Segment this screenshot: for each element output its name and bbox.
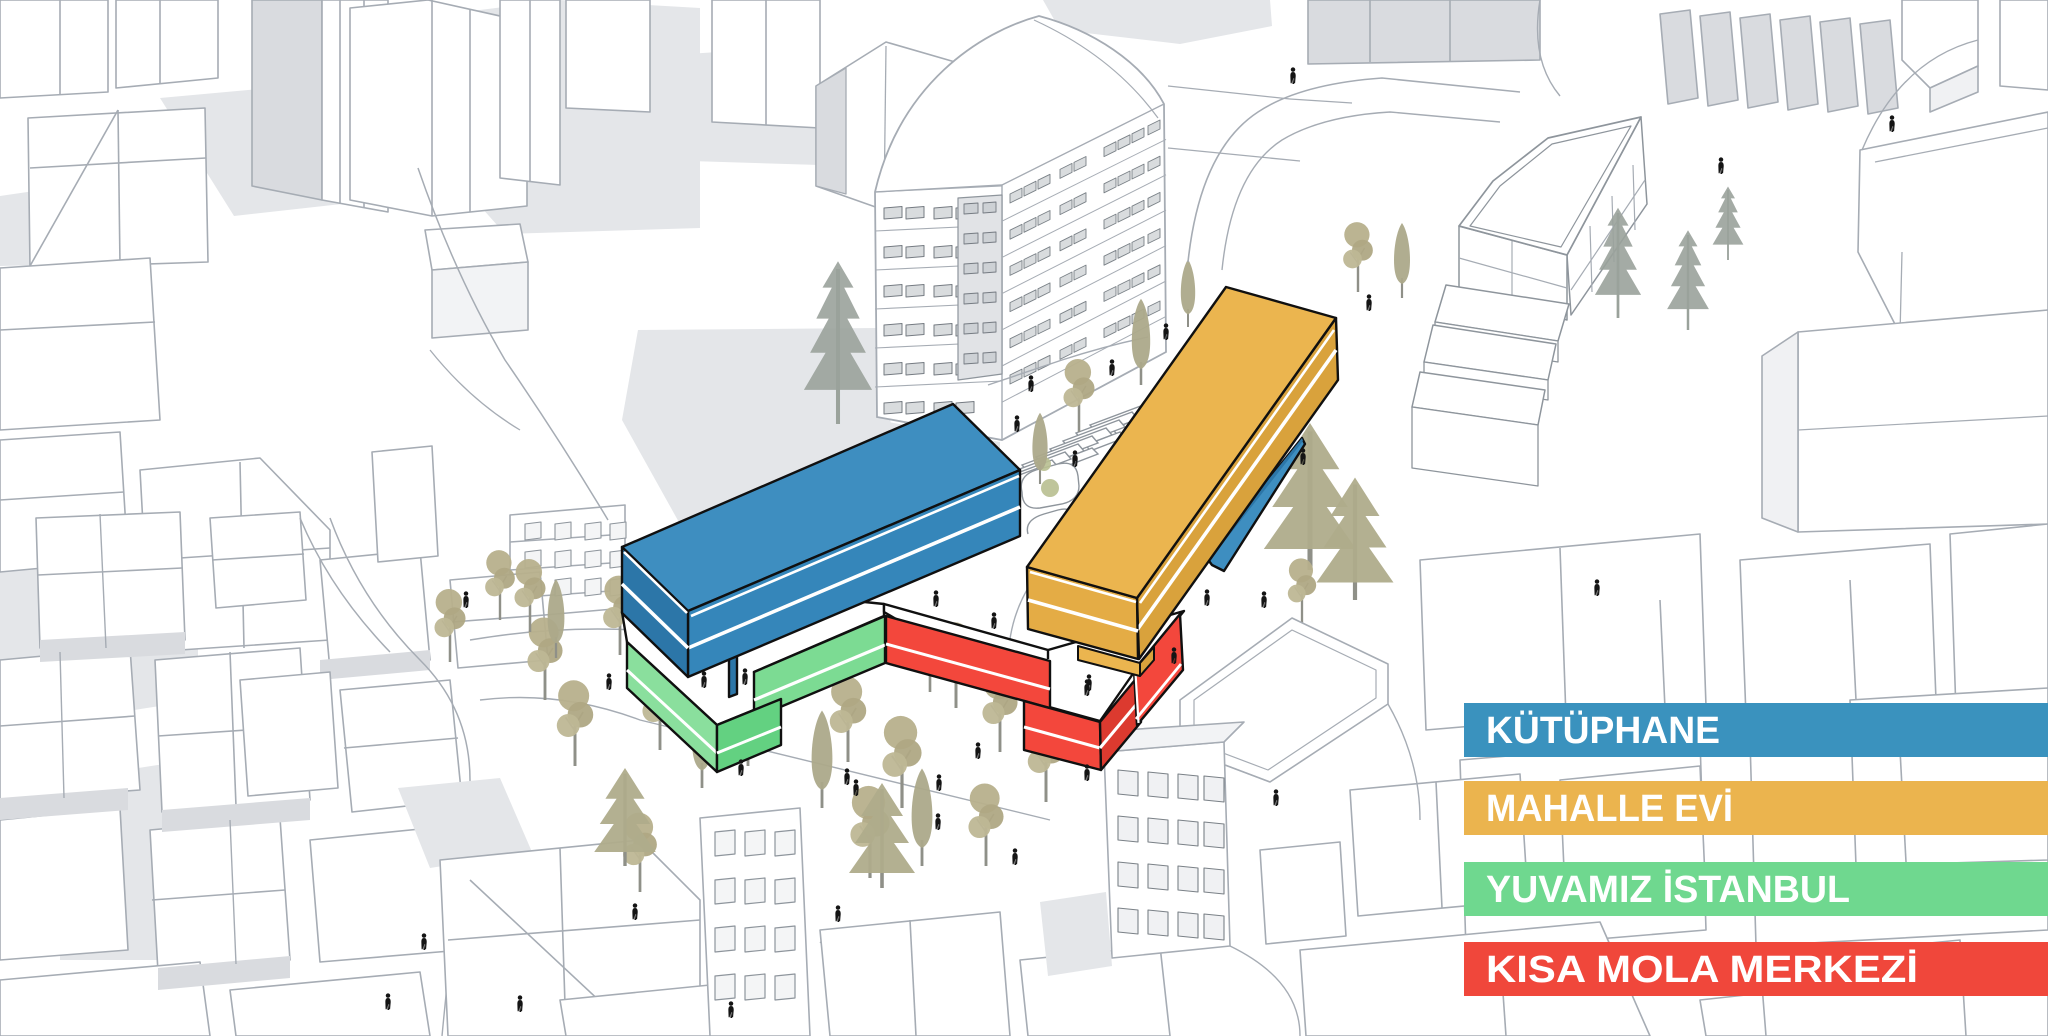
svg-text:YUVAMIZ İSTANBUL: YUVAMIZ İSTANBUL (1486, 869, 1850, 911)
svg-text:MAHALLE EVİ: MAHALLE EVİ (1486, 788, 1733, 830)
svg-text:KÜTÜPHANE: KÜTÜPHANE (1486, 709, 1720, 752)
svg-text:KISA MOLA MERKEZİ: KISA MOLA MERKEZİ (1486, 949, 1918, 991)
